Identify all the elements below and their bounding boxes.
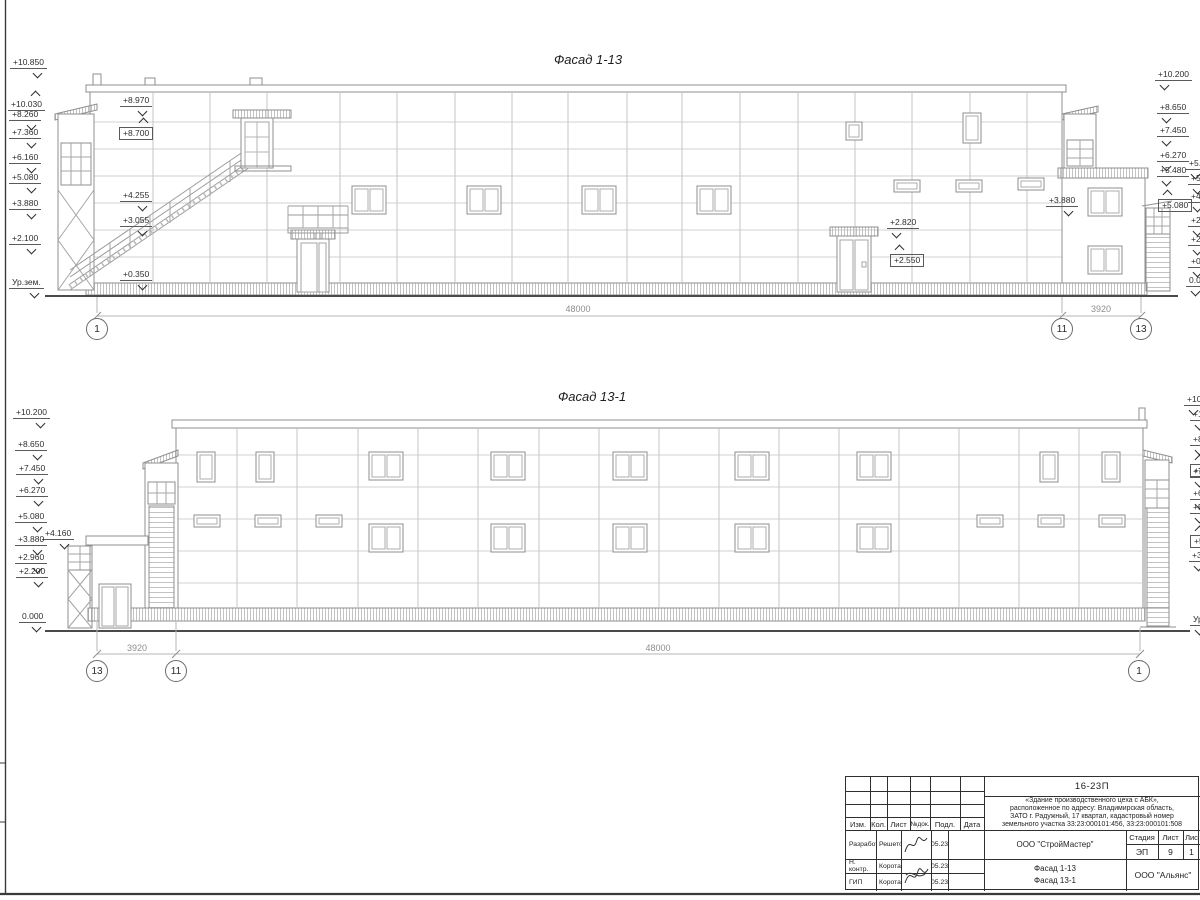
dimension-label: 3920 <box>114 643 160 653</box>
level-value: +10.200 <box>13 408 50 419</box>
level-arrow-icon <box>34 475 44 485</box>
tb-stage-label: Стадия <box>1126 830 1158 844</box>
level-value: +3.880 <box>15 535 47 546</box>
level-value: +5. <box>1186 159 1200 170</box>
elevation-mark: +2.820 <box>887 218 919 237</box>
level-value: +2.960 <box>15 553 47 564</box>
level-arrow-icon <box>1193 246 1200 256</box>
level-arrow-icon <box>1163 190 1173 200</box>
elevation-mark: +2.550 <box>890 246 924 267</box>
dimension-label: 48000 <box>628 643 688 653</box>
tb-col-list: Лист <box>887 818 910 830</box>
level-value: +0.350 <box>120 270 152 281</box>
level-arrow-icon <box>1195 478 1200 488</box>
elevation-mark: +8.650 <box>15 440 47 459</box>
level-arrow-icon <box>27 210 37 220</box>
elevation-mark: +10.200 <box>1155 70 1192 89</box>
level-value: +6.270 <box>1157 151 1189 162</box>
level-value: Ур.зем. <box>9 278 44 289</box>
grid-axis-bubble: 13 <box>86 660 108 682</box>
facade1-dimension-line <box>93 297 1145 320</box>
tb-contractor: ООО "Альянс" <box>1126 859 1200 891</box>
level-arrow-icon <box>27 245 37 255</box>
level-value: 0.000 <box>19 612 46 623</box>
elevation-mark: +5.480 <box>1157 166 1189 185</box>
level-arrow-icon <box>1162 114 1172 124</box>
level-arrow-icon <box>1160 81 1170 91</box>
level-value: +4. <box>1188 192 1200 203</box>
level-value: +10.850 <box>10 58 47 69</box>
elevation-mark: +1 <box>1190 410 1200 429</box>
elevation-mark: +2.100 <box>9 234 41 253</box>
elevation-mark: +6.270 <box>16 486 48 505</box>
elevation-mark: +6.160 <box>9 153 41 172</box>
level-value: +8.260 <box>9 110 41 121</box>
tb-name-gip: Коротаев <box>876 873 901 891</box>
level-arrow-icon <box>33 69 43 79</box>
level-value: +4.255 <box>120 191 152 202</box>
signature-icon <box>902 861 930 889</box>
tb-col-podl: Подл. <box>930 818 960 830</box>
facade1-door-2 <box>830 227 878 292</box>
elevation-mark: +8.970 <box>120 96 152 115</box>
drawing-sheet: Фасад 1-13 Фасад 13-1 +10.850+10.030+8.9… <box>0 0 1200 900</box>
elevation-mark: +0. <box>1188 257 1200 276</box>
level-value: +8.700 <box>119 127 153 140</box>
elevation-mark: +4. <box>1188 192 1200 211</box>
level-arrow-icon <box>1193 203 1200 213</box>
level-value: +2.550 <box>890 254 924 267</box>
grid-axis-bubble: 1 <box>86 318 108 340</box>
tb-role-ncontrol: Н. контр. <box>846 859 876 873</box>
level-value: +2.820 <box>887 218 919 229</box>
level-arrow-icon <box>138 202 148 212</box>
level-arrow-icon <box>1194 562 1200 572</box>
level-arrow-icon <box>892 229 902 239</box>
level-arrow-icon <box>1195 626 1200 636</box>
dimension-label: 48000 <box>548 304 608 314</box>
elevation-mark: +8 <box>1190 435 1200 454</box>
level-value: +8.650 <box>15 440 47 451</box>
facade2-right-tower <box>1140 450 1176 627</box>
level-arrow-icon <box>60 540 70 550</box>
tb-project-description: «Здание производственного цеха с АБК», р… <box>984 796 1200 830</box>
facade1-left-tower <box>55 104 97 290</box>
elevation-mark: 0.000 <box>19 612 46 631</box>
tb-sheet-number: 9 <box>1158 844 1183 859</box>
elevation-mark: +10.850 <box>10 58 47 77</box>
level-arrow-icon <box>32 623 42 633</box>
grid-axis-bubble: 11 <box>1051 318 1073 340</box>
level-value: +0. <box>1188 257 1200 268</box>
level-arrow-icon <box>27 139 37 149</box>
level-value: +5.080 <box>9 173 41 184</box>
level-value: +3.880 <box>9 199 41 210</box>
elevation-mark: Ур <box>1190 615 1200 634</box>
facade2-left-annex <box>68 450 178 628</box>
elevation-mark: +5.080 <box>9 173 41 192</box>
tb-divider <box>846 791 984 792</box>
level-value: +7.450 <box>16 464 48 475</box>
tb-date-developer: 05.23 <box>931 830 948 859</box>
elevation-mark: +4.255 <box>120 191 152 210</box>
elevation-mark: +3.880 <box>1046 196 1078 215</box>
tb-role-gip: ГИП <box>846 873 876 891</box>
title-block: Изм. Кол. Лист №док. Подл. Дата Разработ… <box>845 776 1199 890</box>
level-arrow-icon <box>139 118 149 128</box>
tb-divider <box>948 830 949 891</box>
tb-sheets-label: Лис <box>1183 830 1200 844</box>
level-arrow-icon <box>1162 177 1172 187</box>
elevation-mark: +7 <box>1190 467 1200 486</box>
dimension-label: 3920 <box>1078 304 1124 314</box>
tb-role-developer: Разработал <box>846 830 876 859</box>
tb-stage-value: ЭП <box>1126 844 1158 859</box>
level-value: 0.0 <box>1186 276 1200 287</box>
elevation-mark: +3.880 <box>9 199 41 218</box>
level-value: +7.450 <box>1157 126 1189 137</box>
elevation-mark: +2. <box>1188 235 1200 254</box>
elevation-mark: +3.055 <box>120 216 152 235</box>
level-value: +6.160 <box>9 153 41 164</box>
tb-col-izm: Изм. <box>846 818 870 830</box>
level-value: +2.200 <box>16 567 48 578</box>
level-value: +6.270 <box>16 486 48 497</box>
facade1-right-ladder <box>1142 201 1172 291</box>
tb-sheets-total: 1 <box>1183 844 1200 859</box>
level-arrow-icon <box>33 451 43 461</box>
facade2-dimension-line <box>93 622 1144 658</box>
tb-name-developer: Решетова <box>876 830 901 859</box>
tb-project-code: 16-23П <box>984 777 1200 796</box>
level-value: +5.080 <box>15 512 47 523</box>
level-value: +3.055 <box>120 216 152 227</box>
level-value: +5.480 <box>1157 166 1189 177</box>
level-value: +8.970 <box>120 96 152 107</box>
facade2-title: Фасад 13-1 <box>522 389 662 404</box>
elevation-mark: +7.450 <box>16 464 48 483</box>
tb-divider <box>846 804 984 805</box>
elevation-mark: +2. <box>1188 216 1200 235</box>
elevation-mark: +5 <box>1190 527 1200 548</box>
tb-design-org: ООО "СтройМастер" <box>984 830 1126 859</box>
level-arrow-icon <box>138 107 148 117</box>
level-value: +10 <box>1184 395 1200 406</box>
tb-col-ndok: №док. <box>910 818 930 830</box>
level-value: +2.100 <box>9 234 41 245</box>
level-arrow-icon <box>34 497 44 507</box>
elevation-mark: Ур.зем. <box>9 278 44 297</box>
level-value: +2. <box>1188 216 1200 227</box>
level-arrow-icon <box>1195 526 1200 536</box>
level-value: +2. <box>1188 235 1200 246</box>
tb-date-ncontrol: 05.23 <box>931 859 948 873</box>
level-value: +5. <box>1188 174 1200 185</box>
level-arrow-icon <box>1195 455 1200 465</box>
level-arrow-icon <box>1195 514 1200 524</box>
elevation-mark: +8.700 <box>119 119 153 140</box>
elevation-mark: +7.360 <box>9 128 41 147</box>
level-arrow-icon <box>27 184 37 194</box>
tb-col-data: Дата <box>960 818 984 830</box>
level-arrow-icon <box>138 227 148 237</box>
level-arrow-icon <box>1162 137 1172 147</box>
tb-name-ncontrol: Коротаев <box>876 859 901 873</box>
elevation-mark: +7.450 <box>1157 126 1189 145</box>
facade-line-art <box>0 0 1200 900</box>
level-value: +10.200 <box>1155 70 1192 81</box>
level-arrow-icon <box>895 245 905 255</box>
facade1-title: Фасад 1-13 <box>518 52 658 67</box>
tb-col-kol: Кол. <box>870 818 887 830</box>
level-arrow-icon <box>138 281 148 291</box>
facade1-drawing <box>45 74 1178 320</box>
elevation-mark: +5 <box>1190 503 1200 522</box>
level-arrow-icon <box>1191 287 1200 297</box>
tb-date-gip: 05.23 <box>931 873 948 891</box>
elevation-mark: 0.0 <box>1186 276 1200 295</box>
grid-axis-bubble: 1 <box>1128 660 1150 682</box>
tb-drawing-names: Фасад 1-13 Фасад 13-1 <box>984 859 1126 891</box>
level-arrow-icon <box>1195 421 1200 431</box>
elevation-mark: +2.200 <box>16 567 48 586</box>
level-arrow-icon <box>1064 207 1074 217</box>
elevation-mark: +0.350 <box>120 270 152 289</box>
elevation-mark: +3 <box>1189 551 1200 570</box>
level-value: +8.650 <box>1157 103 1189 114</box>
level-value: +5 <box>1190 535 1200 548</box>
level-arrow-icon <box>29 289 39 299</box>
level-arrow-icon <box>34 578 44 588</box>
signature-icon <box>902 832 930 857</box>
elevation-mark: +10.200 <box>13 408 50 427</box>
tb-sheet-label: Лист <box>1158 830 1183 844</box>
grid-axis-bubble: 13 <box>1130 318 1152 340</box>
level-value: +7.360 <box>9 128 41 139</box>
facade2-drawing <box>45 408 1190 658</box>
facade1-door-1 <box>291 230 335 292</box>
elevation-mark: +8.650 <box>1157 103 1189 122</box>
level-arrow-icon <box>36 419 46 429</box>
level-value: +3.880 <box>1046 196 1078 207</box>
grid-axis-bubble: 11 <box>165 660 187 682</box>
